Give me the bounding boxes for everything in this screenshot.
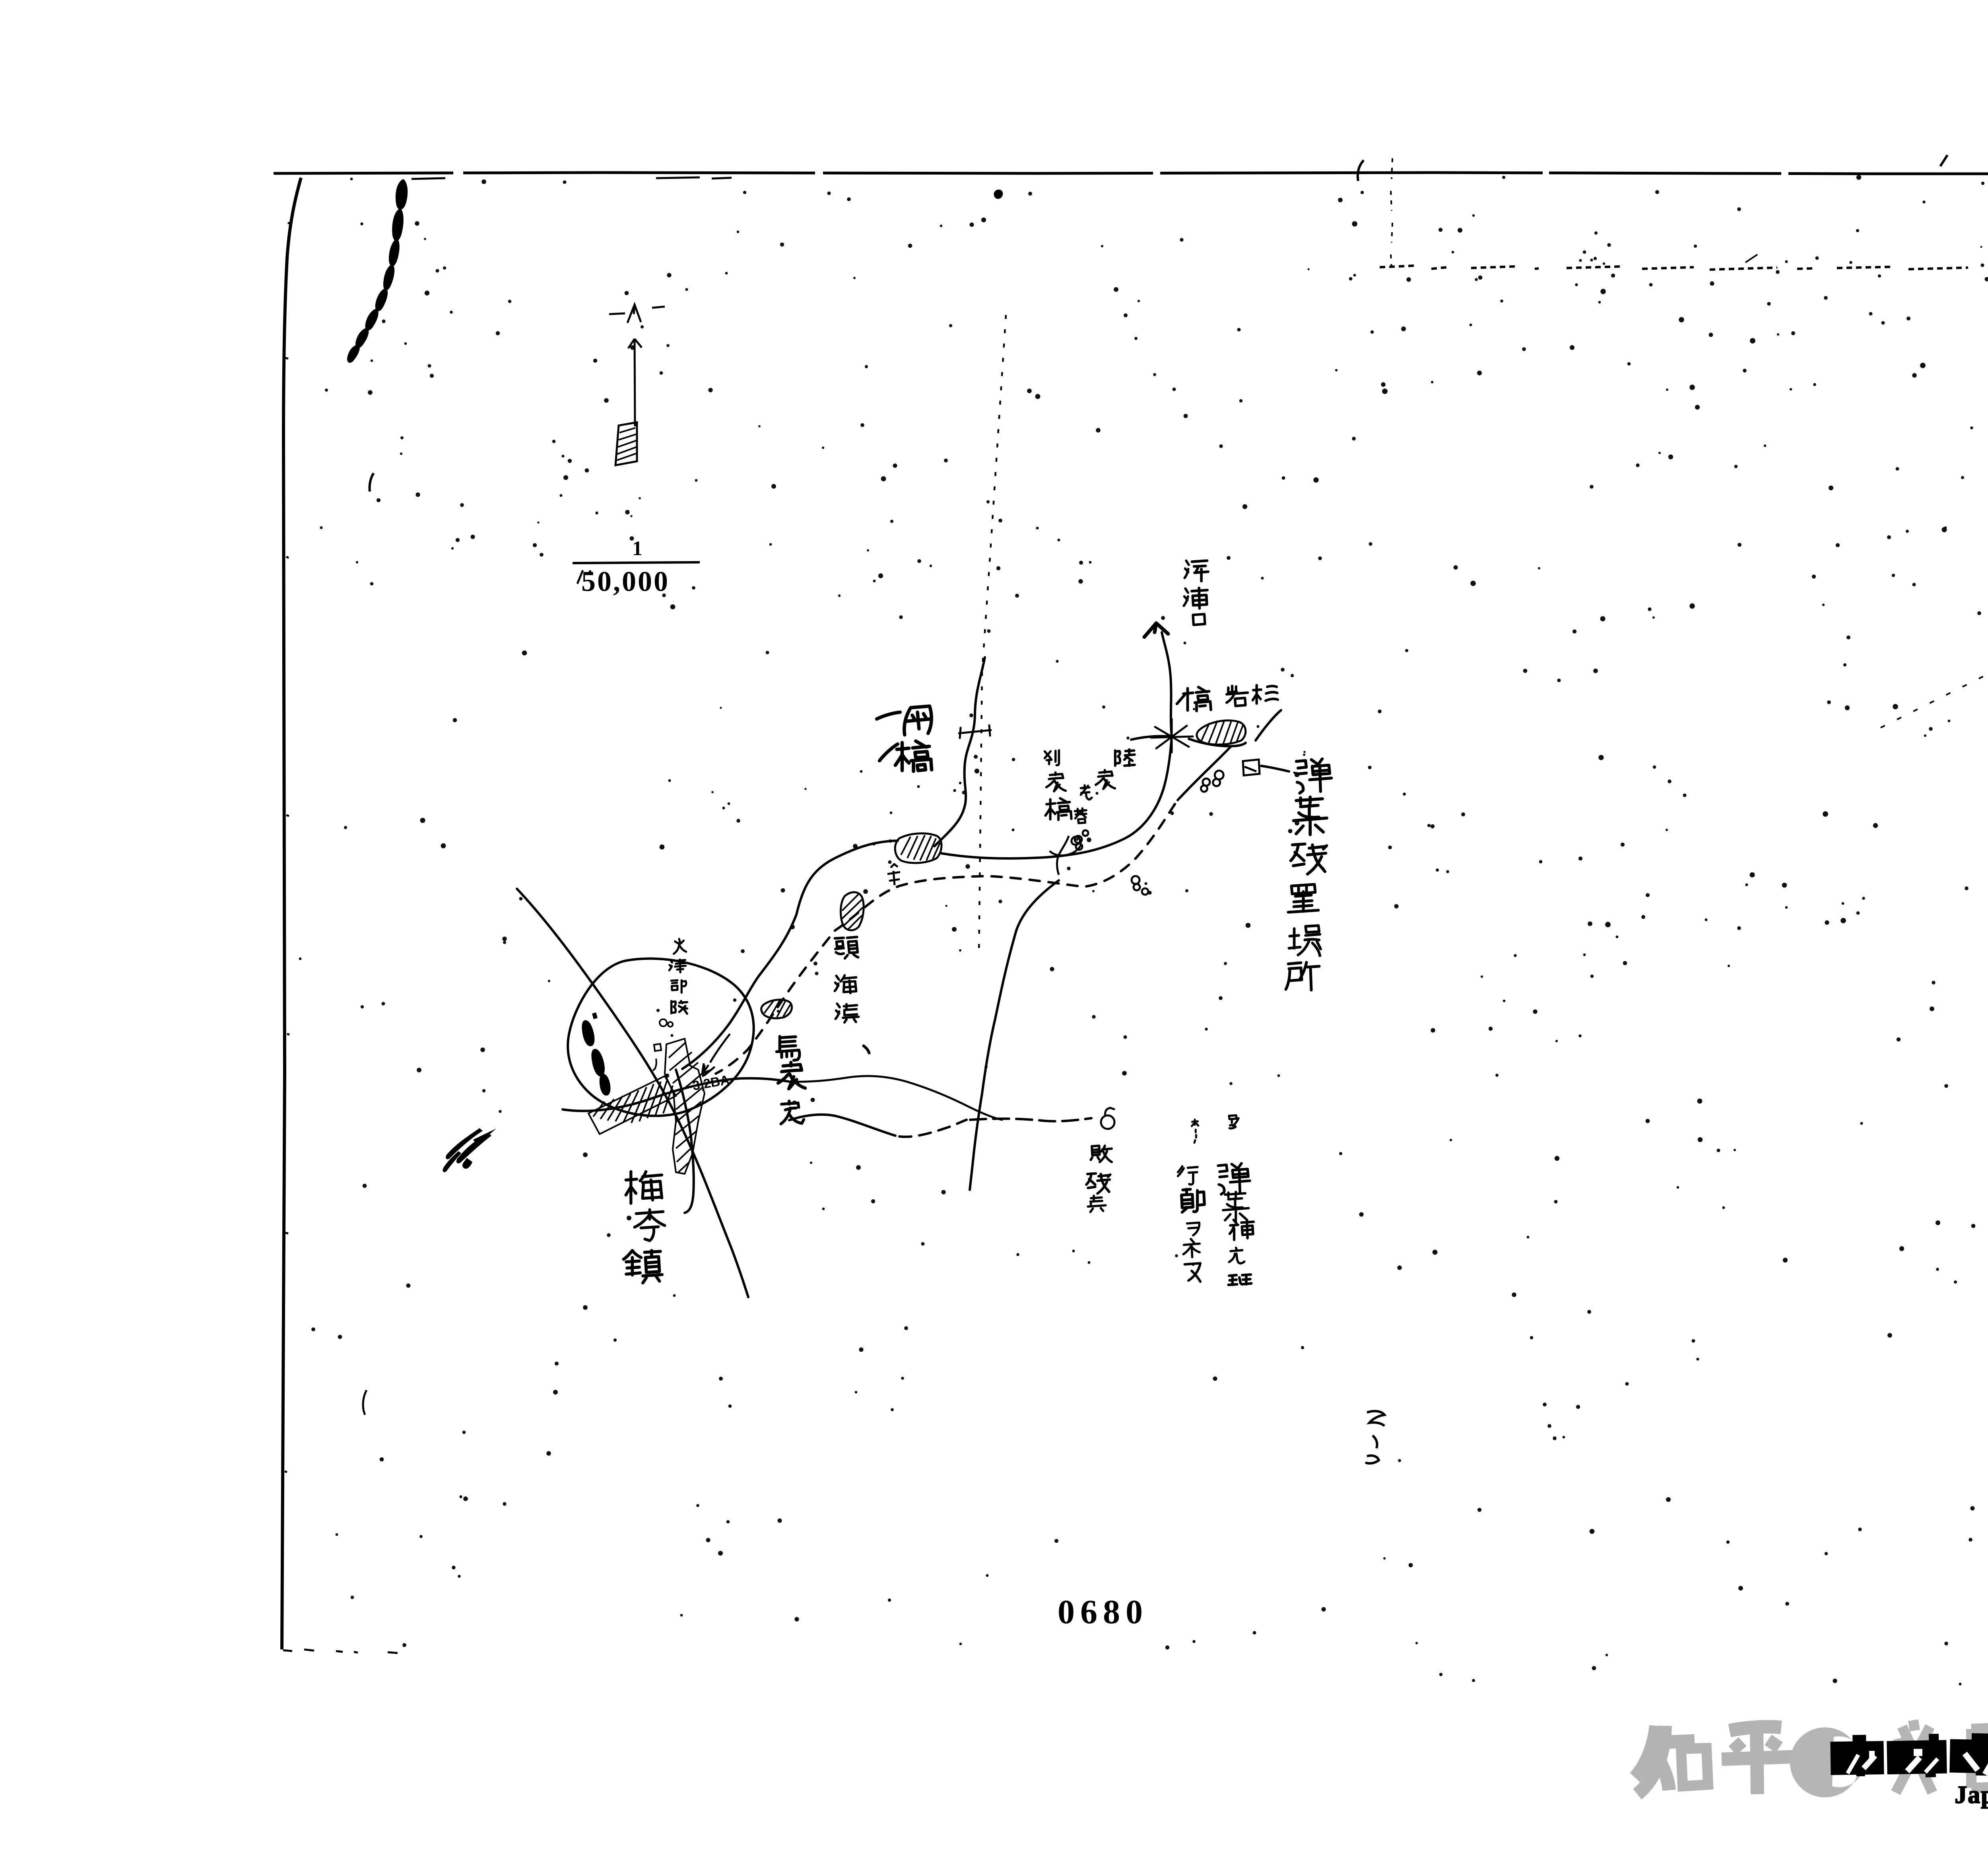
svg-text:.: . bbox=[691, 571, 696, 594]
svg-text:50,000: 50,000 bbox=[581, 565, 670, 597]
svg-text:1: 1 bbox=[632, 537, 643, 560]
svg-text:0680: 0680 bbox=[1058, 1593, 1148, 1631]
svg-text:Japan Center for Asian Histori: Japan Center for Asian Historical Record… bbox=[1955, 1781, 1988, 1809]
